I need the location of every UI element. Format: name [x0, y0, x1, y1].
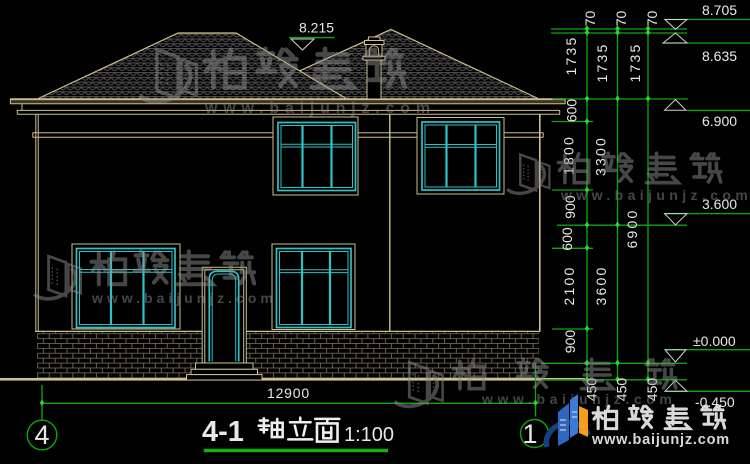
- svg-text:6900: 6900: [624, 209, 640, 249]
- svg-text:1735: 1735: [563, 36, 579, 76]
- svg-text:70: 70: [644, 11, 660, 27]
- svg-text:600: 600: [559, 227, 575, 251]
- svg-text:900: 900: [562, 330, 578, 354]
- svg-text:www.baijunjz.com: www.baijunjz.com: [91, 290, 277, 306]
- svg-text:4-1: 4-1: [202, 416, 244, 448]
- svg-text:600: 600: [564, 99, 580, 123]
- svg-text:1:100: 1:100: [344, 424, 394, 446]
- svg-text:8.215: 8.215: [299, 20, 334, 36]
- svg-text:1735: 1735: [627, 43, 643, 83]
- svg-text:www.baijunjz.com: www.baijunjz.com: [560, 187, 750, 203]
- svg-text:4: 4: [34, 420, 49, 450]
- svg-text:12900: 12900: [267, 385, 310, 401]
- svg-text:1: 1: [522, 419, 537, 449]
- svg-text:1735: 1735: [594, 43, 610, 83]
- svg-text:www.baijunjz.com: www.baijunjz.com: [204, 100, 436, 117]
- svg-text:2100: 2100: [561, 266, 577, 306]
- svg-text:www.baijunjz.com: www.baijunjz.com: [481, 391, 676, 407]
- svg-text:70: 70: [613, 11, 629, 27]
- svg-text:6.900: 6.900: [702, 113, 737, 129]
- svg-text:8.705: 8.705: [702, 2, 737, 18]
- svg-text:www.baijunjz.com: www.baijunjz.com: [591, 432, 730, 448]
- svg-text:8.635: 8.635: [702, 48, 737, 64]
- svg-text:70: 70: [582, 11, 598, 27]
- svg-text:3600: 3600: [593, 266, 609, 306]
- svg-text:±0.000: ±0.000: [693, 333, 736, 349]
